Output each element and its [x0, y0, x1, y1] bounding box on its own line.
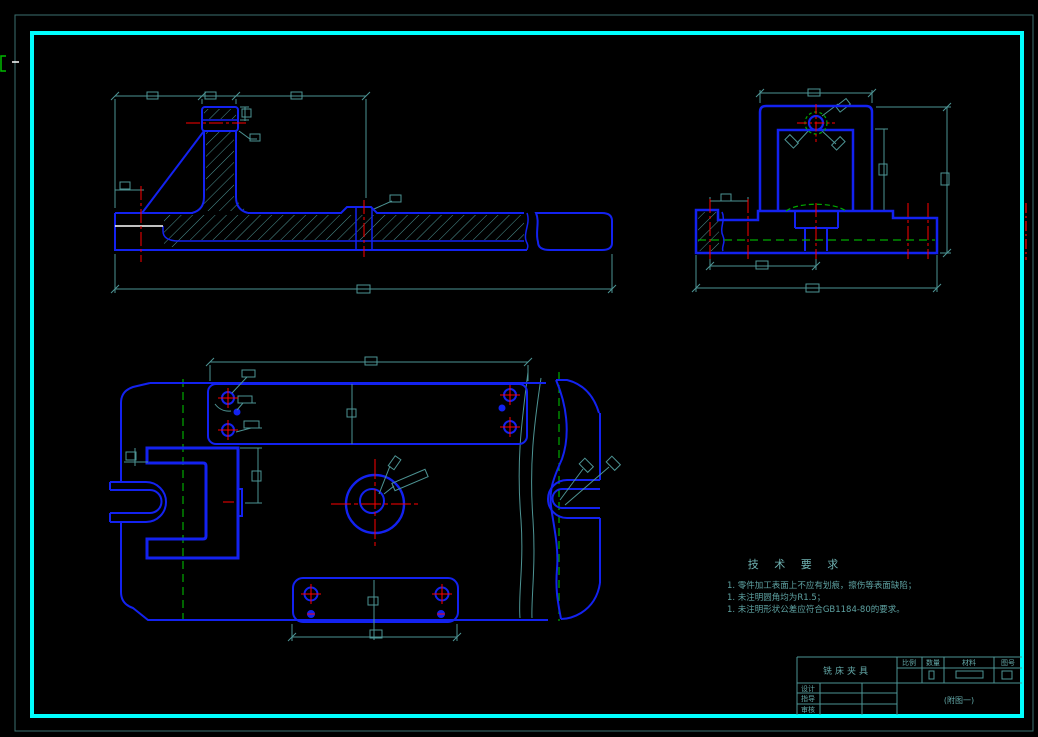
dim-label-box	[756, 261, 768, 269]
edge-bracket-mark	[1, 56, 6, 71]
dim-label-box	[242, 370, 255, 377]
center-hole	[360, 489, 384, 513]
tech-req-title: 技 术 要 求	[748, 558, 845, 571]
dim-label-box	[606, 456, 620, 470]
designer-label: 设计	[801, 684, 815, 693]
drawing-frame	[1, 15, 1033, 731]
dim-label-box	[242, 109, 251, 117]
surface-symbol-box	[392, 469, 428, 490]
tech-req-item: 1. 未注明圆角均为R1.5；	[727, 592, 825, 603]
quantity-label: 数量	[926, 658, 940, 667]
drawing-no-label: 图号	[1001, 659, 1015, 667]
front-dims	[111, 92, 616, 293]
plan-dims	[124, 357, 620, 641]
quantity-value-glyph	[929, 671, 934, 679]
left-lug-slot-inner	[110, 490, 162, 513]
side-centerlines	[710, 104, 928, 262]
plan-centerlines	[218, 385, 520, 614]
title-block: 铣床夹具 比例 数量 材料 图号 设计 指导 审核 (附图一)	[797, 657, 1022, 715]
right-lug-slot-outer	[548, 480, 600, 518]
checker-label: 审核	[801, 705, 815, 714]
cad-canvas: 技 术 要 求 1. 零件加工表面上不应有划痕，擦伤等表面缺陷； 1. 未注明圆…	[0, 0, 1038, 737]
dim-label-box	[120, 182, 130, 189]
break-line	[525, 213, 528, 250]
dim-label-box	[579, 458, 593, 472]
right-end-piece	[536, 213, 612, 250]
part-name: 铣床夹具	[823, 665, 871, 677]
section-hatch	[164, 109, 524, 247]
advisor-label: 指导	[801, 694, 815, 703]
dim-label-box	[238, 396, 252, 403]
material-label: 材料	[962, 658, 976, 667]
tech-req-item: 1. 零件加工表面上不应有划痕，擦伤等表面缺陷；	[727, 580, 916, 591]
figure-note: (附图一)	[944, 695, 974, 705]
dim-label-box	[832, 137, 845, 150]
plan-break-squiggles	[519, 372, 541, 618]
gusset-edge	[142, 131, 204, 213]
dim-label-box	[785, 135, 798, 148]
dim-label-box	[388, 456, 401, 470]
left-lug-slot-outer	[110, 482, 166, 522]
tech-requirements: 技 术 要 求 1. 零件加工表面上不应有划痕，擦伤等表面缺陷； 1. 未注明圆…	[727, 558, 916, 615]
outer-border	[15, 15, 1033, 731]
dim-label-box	[250, 134, 260, 141]
side-section-view	[692, 89, 951, 292]
dim-label-box	[244, 421, 259, 428]
scale-label: 比例	[902, 658, 916, 667]
dim-label-box	[368, 597, 378, 605]
material-value-glyph	[956, 671, 983, 678]
dim-label-box	[365, 357, 377, 365]
break-wave	[722, 212, 724, 251]
top-slot-plate	[208, 384, 527, 444]
dim-label-box	[879, 164, 887, 175]
section-hatch	[698, 212, 719, 251]
dim-label-box	[941, 173, 949, 185]
pin-dot	[499, 405, 505, 411]
tech-req-item: 1. 未注明形状公差应符合GB1184-80的要求。	[727, 604, 905, 615]
plan-view	[110, 357, 620, 641]
drawing-svg: 技 术 要 求 1. 零件加工表面上不应有划痕，擦伤等表面缺陷； 1. 未注明圆…	[0, 0, 1038, 737]
right-lug-slot-inner	[553, 489, 601, 508]
drawing-no-value-glyph	[1002, 671, 1012, 679]
u-frame-inner	[778, 130, 853, 212]
front-section-view	[111, 92, 616, 293]
dim-label-box	[252, 471, 261, 481]
bottom-key-plate	[293, 578, 458, 622]
dim-label-box	[721, 194, 731, 201]
